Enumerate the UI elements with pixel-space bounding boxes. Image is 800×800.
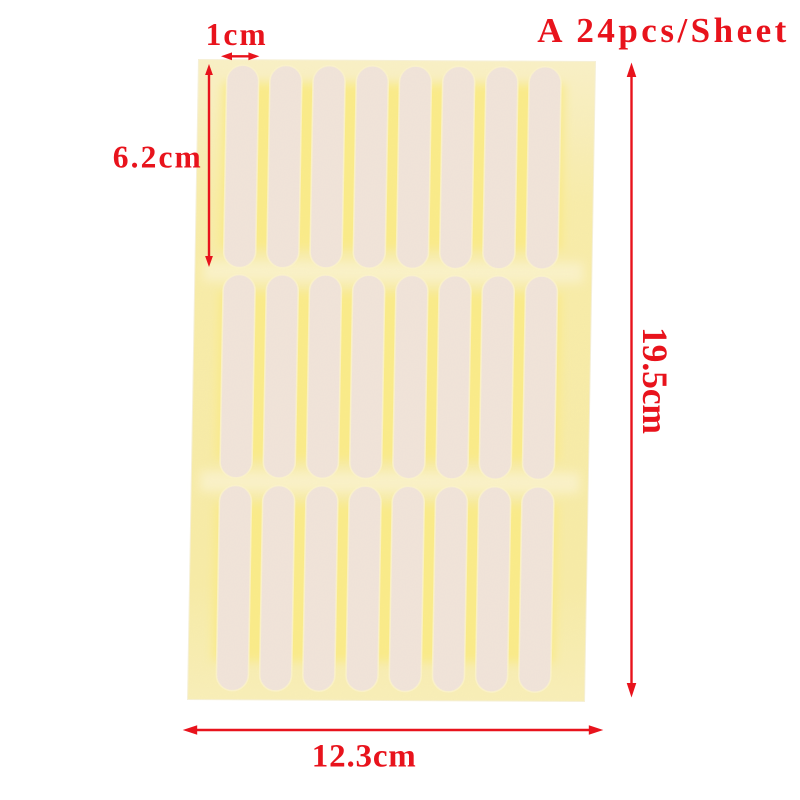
svg-text:19.5cm: 19.5cm — [635, 327, 675, 434]
svg-text:12.3cm: 12.3cm — [312, 738, 416, 774]
svg-text:1cm: 1cm — [206, 17, 266, 52]
